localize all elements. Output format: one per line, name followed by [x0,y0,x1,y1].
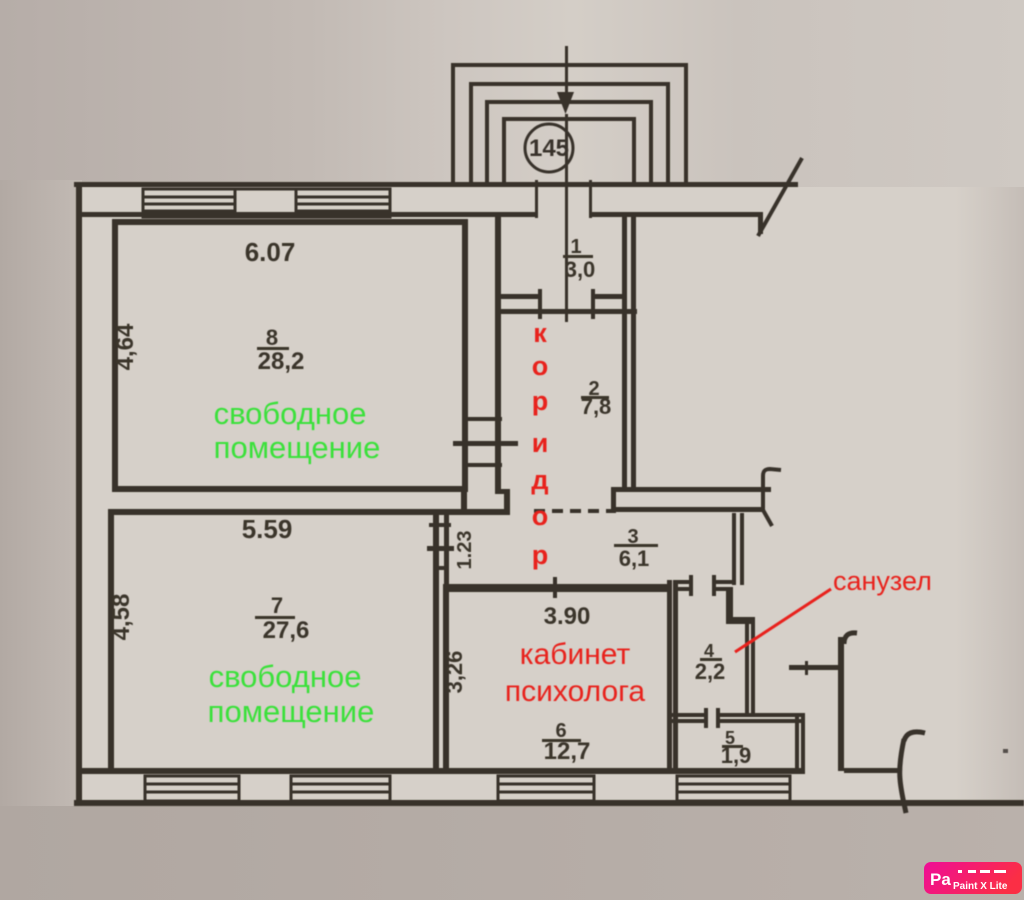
svg-text:6.07: 6.07 [245,237,296,267]
svg-text:3,0: 3,0 [565,257,596,282]
svg-text:4,58: 4,58 [108,594,135,641]
svg-text:5.59: 5.59 [242,514,293,544]
svg-text:4,64: 4,64 [112,323,139,370]
svg-text:свободное: свободное [214,396,367,431]
svg-text:о: о [532,351,549,381]
svg-text:1.23: 1.23 [454,531,476,570]
svg-text:Paint X Lite: Paint X Lite [953,881,1008,892]
svg-text:1: 1 [570,236,581,258]
svg-text:психолога: психолога [505,675,646,708]
svg-text:Pa: Pa [930,870,951,889]
svg-text:и: и [532,428,549,458]
svg-text:145: 145 [529,135,569,162]
svg-text:помещение: помещение [214,430,381,465]
svg-text:к: к [533,318,547,348]
svg-text:28,2: 28,2 [258,348,305,375]
svg-text:27,6: 27,6 [263,617,310,644]
svg-text:свободное: свободное [209,659,362,694]
svg-text:помещение: помещение [208,694,375,729]
svg-text:о: о [532,501,549,531]
svg-text:р: р [532,540,549,570]
svg-text:кабинет: кабинет [520,638,631,671]
svg-text:12,7: 12,7 [544,738,591,765]
svg-text:2,2: 2,2 [695,659,726,684]
svg-text:р: р [532,386,549,416]
svg-text:3.90: 3.90 [544,603,591,630]
svg-text:6,1: 6,1 [619,546,650,571]
svg-text:7: 7 [271,593,283,618]
svg-text:санузел: санузел [833,566,932,596]
svg-text:д: д [531,465,548,495]
svg-text:3,26: 3,26 [442,651,467,694]
svg-text:8: 8 [266,325,278,350]
